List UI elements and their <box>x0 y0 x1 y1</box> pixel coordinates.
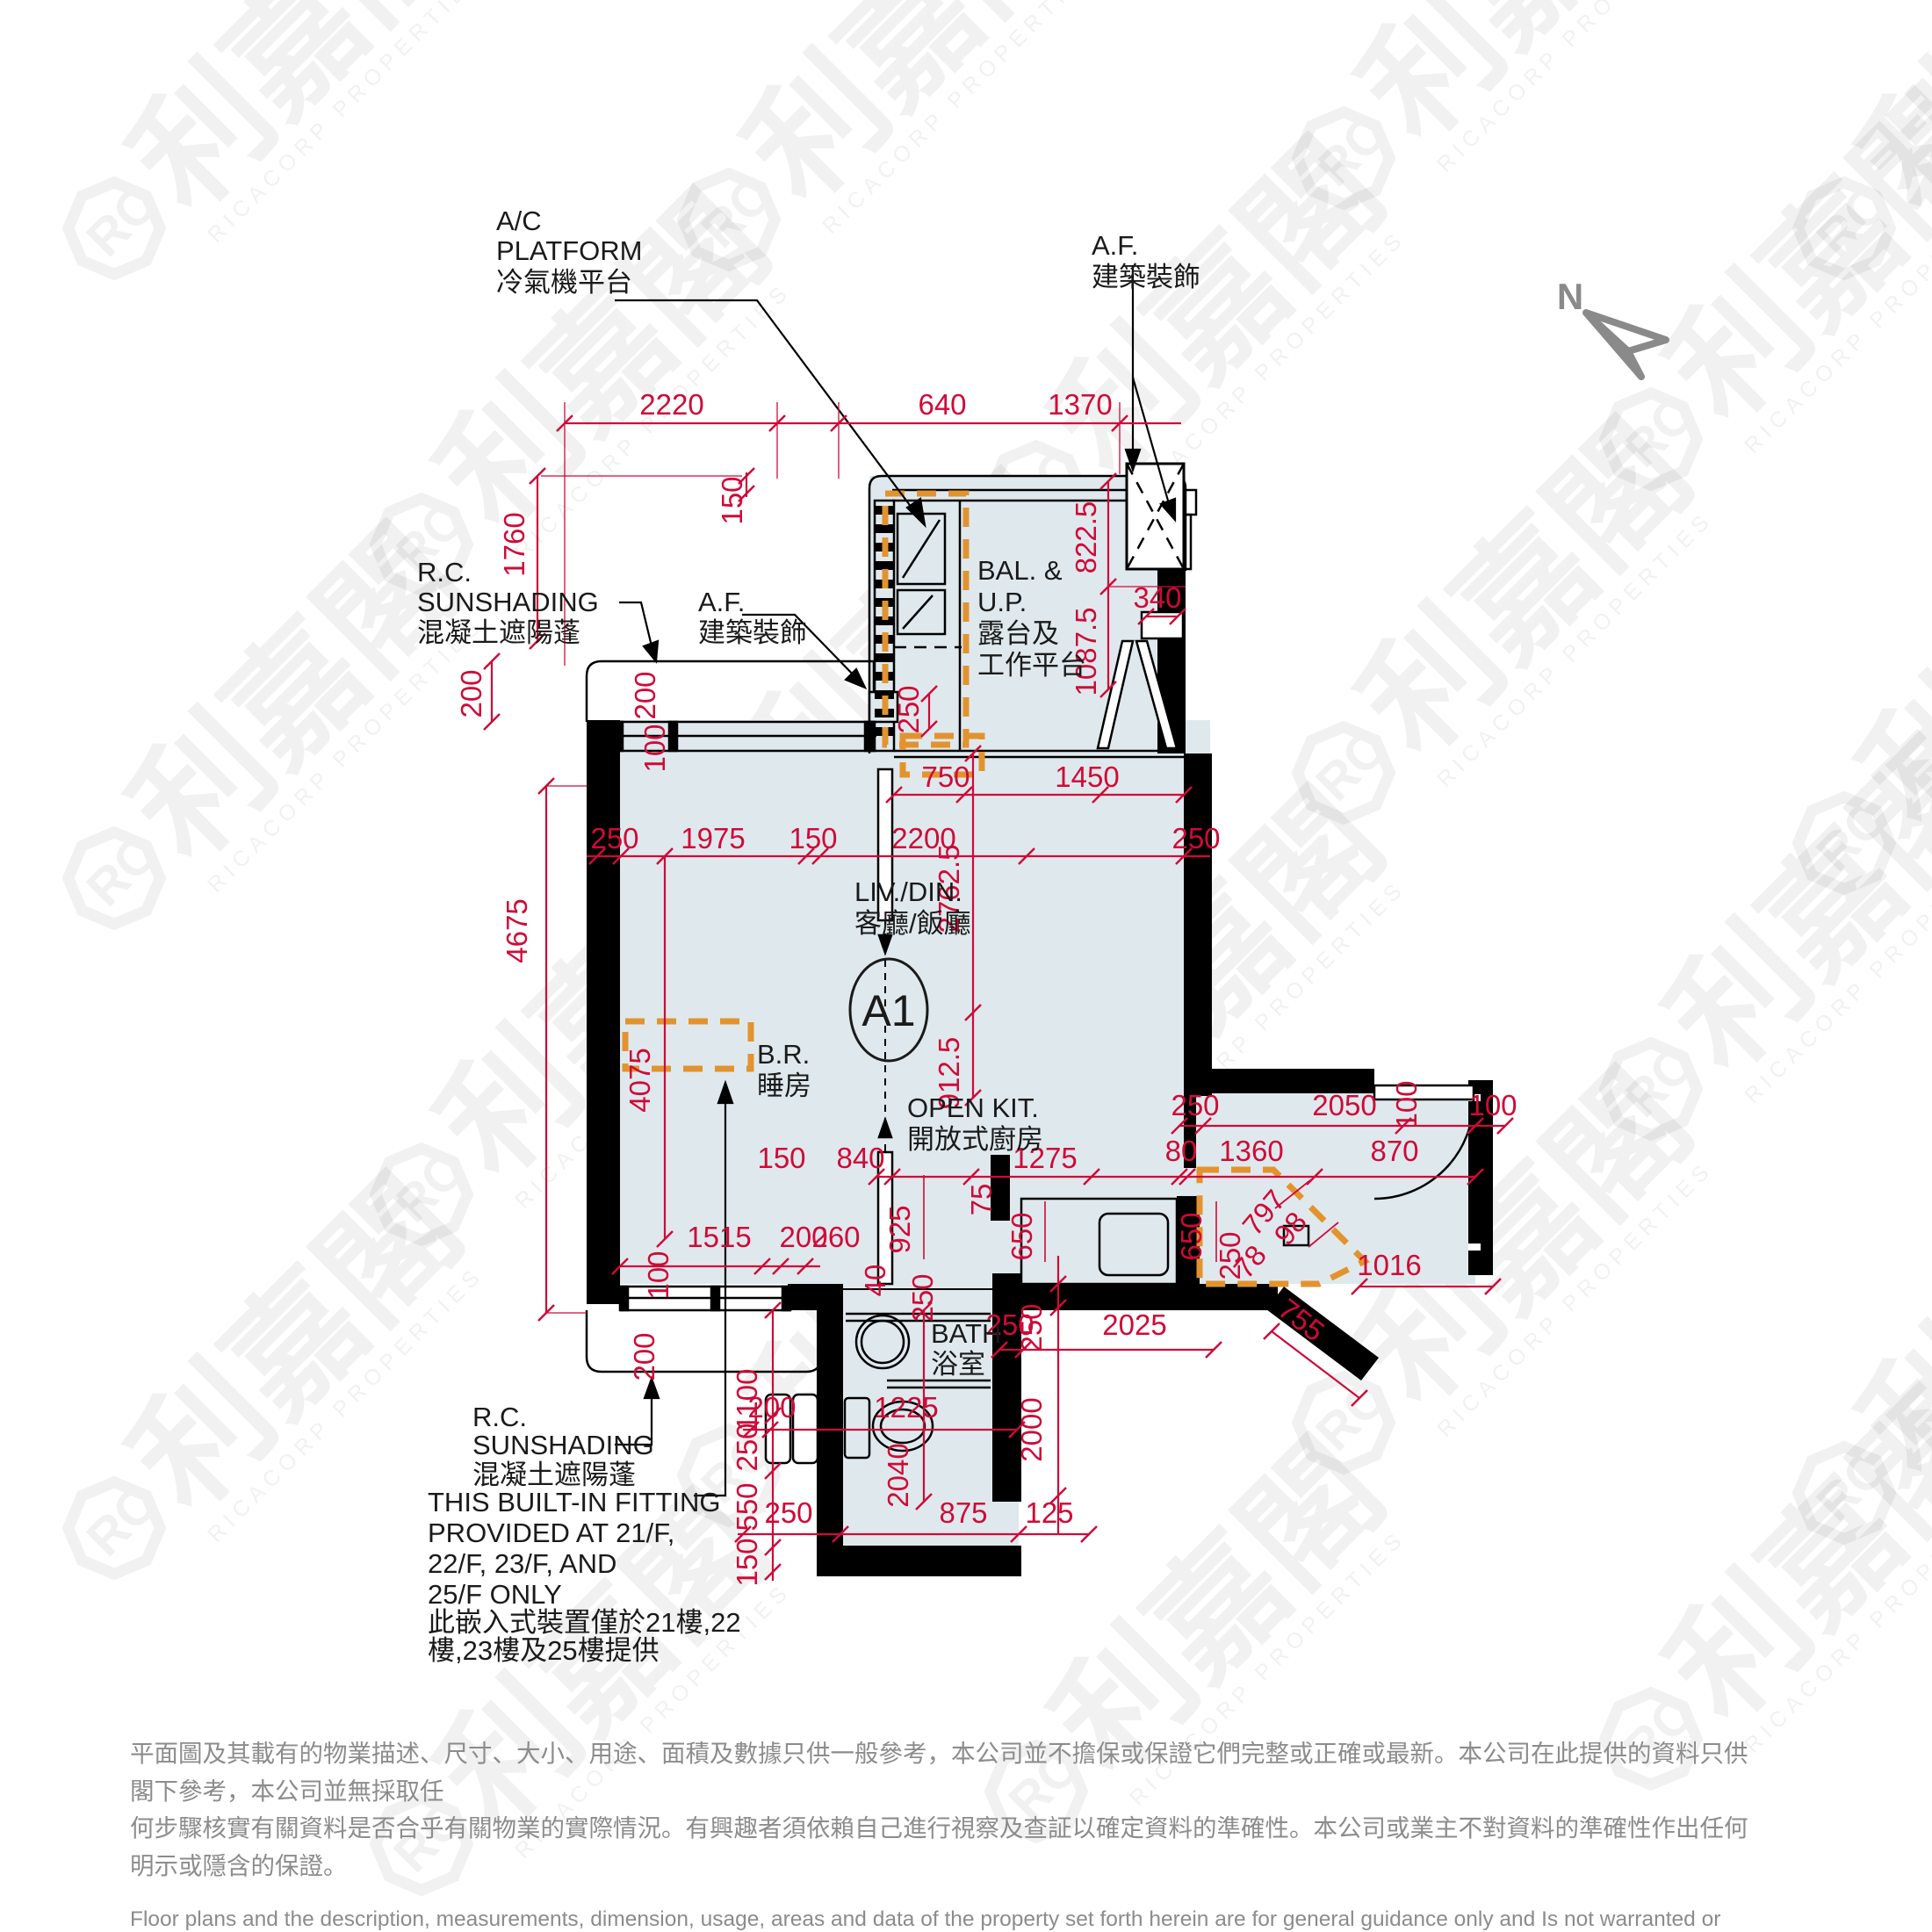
annotation-label: 混凝土遮陽蓬 <box>417 617 580 648</box>
annotation-label: A/C <box>496 205 542 236</box>
annotation-label: BATH <box>931 1318 1001 1349</box>
annotation-label: 浴室 <box>931 1349 985 1380</box>
annotation-label: 開放式廚房 <box>907 1124 1043 1155</box>
dimension-label: 150 <box>757 1142 805 1174</box>
dimension-label: 1100 <box>731 1369 763 1431</box>
dimension-label: 100 <box>638 724 671 772</box>
watermark-chinese-logo: 利嘉閣 <box>1641 1362 1932 1746</box>
disclaimer-zh-line1: 平面圖及其載有的物業描述、尺寸、大小、用途、面積及數據只供一般參考，本公司並不擔… <box>130 1735 1765 1810</box>
watermark-chinese-logo: 利嘉閣 <box>1641 712 1932 1096</box>
dimension-label: 250 <box>590 822 638 854</box>
dimension-label: 40 <box>859 1265 891 1297</box>
annotation-label: LIV./DIN. <box>854 876 962 907</box>
leader-rc-top-arrowhead <box>644 641 658 661</box>
dimension-label: 4075 <box>624 1048 656 1112</box>
dimension-label: 1225 <box>874 1391 938 1424</box>
disclaimer-zh-line2: 何步驟核實有關資料是否合乎有關物業的實際情況。有興趣者須依賴自己進行視察及查証以… <box>130 1810 1765 1885</box>
dimension-label: 200 <box>629 671 661 719</box>
dimension-label: 2220 <box>639 388 703 421</box>
entrance-door-leaf <box>1374 1085 1474 1099</box>
annotation-label: 冷氣機平台 <box>496 267 632 298</box>
north-label: N <box>1557 276 1583 317</box>
annotation-label: 露台及 <box>977 618 1059 649</box>
dimension-label: 250 <box>731 1423 763 1471</box>
wall-left <box>587 720 620 1304</box>
watermark-chinese-logo: 利嘉閣 <box>1334 396 1718 780</box>
floor-plan-drawing: RC利嘉閣RICACORP PROPERTIESRC利嘉閣RICACORP PR… <box>0 0 1932 1932</box>
annotation-label: R.C. <box>417 557 472 588</box>
dimension-label: 650 <box>1175 1212 1207 1260</box>
dimension-label: 250 <box>892 685 925 733</box>
dimension-label: 2040 <box>882 1443 914 1507</box>
door-jamb-mark-bottom <box>1468 1244 1481 1251</box>
dimension-label: 2050 <box>1312 1089 1376 1121</box>
watermark-chinese-logo: 利嘉閣 <box>1027 115 1410 499</box>
annotation-label: 樓,23樓及25樓提供 <box>428 1635 660 1666</box>
dimension-label: 822.5 <box>1070 501 1102 574</box>
annotation-label: SUNSHADING <box>472 1430 654 1460</box>
dimension-label: 1760 <box>498 512 530 576</box>
ricacorp-watermark: RC利嘉閣RICACORP PROPERTIES <box>28 0 500 323</box>
dimension-label: 100 <box>1468 1089 1517 1121</box>
dimension-label: 250 <box>906 1273 939 1322</box>
wall-living-right <box>1184 753 1212 1096</box>
annotation-label: 建築裝飾 <box>1092 262 1200 292</box>
wall-stub-bottom <box>817 1546 1021 1576</box>
dimension-label: 875 <box>939 1496 987 1529</box>
dimension-label: 150 <box>789 822 837 854</box>
annotation-label: 此嵌入式裝置僅於21樓,22 <box>428 1607 741 1638</box>
annotation-label: 25/F ONLY <box>428 1579 562 1610</box>
dimension-label: 1450 <box>1055 761 1119 793</box>
disclaimer-en-line1: Floor plans and the description, measure… <box>130 1905 1765 1932</box>
dimension-label: 150 <box>716 476 748 524</box>
toilet-tank <box>845 1398 869 1458</box>
watermark-chinese-logo: 利嘉閣 <box>719 0 1103 227</box>
dimension-label: 80 <box>1165 1135 1198 1167</box>
annotation-label: 22/F, 23/F, AND <box>428 1548 616 1579</box>
annotation-label: B.R. <box>757 1039 810 1070</box>
dimension-label: 1370 <box>1048 388 1112 421</box>
dimension-label: 1360 <box>1219 1135 1283 1167</box>
watermark-chinese-logo: 利嘉閣 <box>1641 62 1932 446</box>
dimension-label: 200 <box>455 669 487 717</box>
dimension-label: 200 <box>628 1332 660 1381</box>
watermark-chinese-logo: 利嘉閣 <box>105 1151 488 1535</box>
dimension-label: 640 <box>918 388 966 421</box>
dimension-label: 650 <box>1006 1212 1038 1260</box>
annotation-label: THIS BUILT-IN FITTING <box>428 1487 721 1517</box>
dimension-label: 1975 <box>681 822 745 854</box>
dimension-label: 100 <box>642 1251 674 1299</box>
north-indicator: N <box>1557 276 1666 377</box>
dimension-label: 125 <box>1025 1496 1073 1529</box>
dimension-label: 870 <box>1370 1135 1418 1167</box>
disclaimer-block: 平面圖及其載有的物業描述、尺寸、大小、用途、面積及數據只供一般參考，本公司並不擔… <box>130 1735 1765 1932</box>
floor-plan-page: RC利嘉閣RICACORP PROPERTIESRC利嘉閣RICACORP PR… <box>0 0 1932 1932</box>
annotation-label: 建築裝飾 <box>698 617 807 648</box>
dimension-label: 2000 <box>1015 1397 1048 1461</box>
dimension-label: 75 <box>965 1184 998 1216</box>
dimension-label: 340 <box>1133 581 1181 614</box>
annotation-label: BAL. & <box>977 555 1063 586</box>
af-box-step2 <box>1184 515 1191 569</box>
annotation-label: A.F. <box>698 587 745 617</box>
dimension-label: 840 <box>836 1142 884 1174</box>
dimension-label: 550 <box>731 1482 763 1531</box>
dimension-label: 925 <box>883 1205 916 1253</box>
dimension-label: 1016 <box>1357 1249 1421 1281</box>
dimension-label: 260 <box>811 1221 860 1253</box>
annotation-label: PLATFORM <box>496 235 643 266</box>
dimension-label: 100 <box>1390 1080 1423 1128</box>
annotation-label: R.C. <box>472 1402 527 1432</box>
dimension-label: 1515 <box>687 1221 751 1253</box>
dimension-label: 4675 <box>501 898 533 962</box>
dimension-label: 750 <box>921 761 970 793</box>
dimension-label: 250 <box>1015 1303 1048 1352</box>
annotation-label: 工作平台 <box>977 650 1086 681</box>
dimension-label: 2025 <box>1102 1308 1166 1341</box>
annotation-label: SUNSHADING <box>417 587 599 617</box>
dimension-label: 250 <box>1171 1089 1219 1121</box>
dimension-label: 250 <box>1171 822 1220 854</box>
dimension-label: 150 <box>731 1538 763 1586</box>
dimension-label: 250 <box>764 1496 812 1529</box>
annotation-label: U.P. <box>977 587 1027 617</box>
annotation-label: PROVIDED AT 21/F, <box>428 1517 674 1548</box>
unit-label: A1 <box>861 986 915 1035</box>
wall-bath-corner <box>788 1284 817 1310</box>
annotation-label: 睡房 <box>757 1071 811 1101</box>
annotation-label: 客廳/飯廳 <box>854 908 971 939</box>
annotation-label: A.F. <box>1092 230 1138 261</box>
annotation-label: OPEN KIT. <box>907 1092 1039 1123</box>
annotation-label: 混凝土遮陽蓬 <box>472 1460 636 1490</box>
